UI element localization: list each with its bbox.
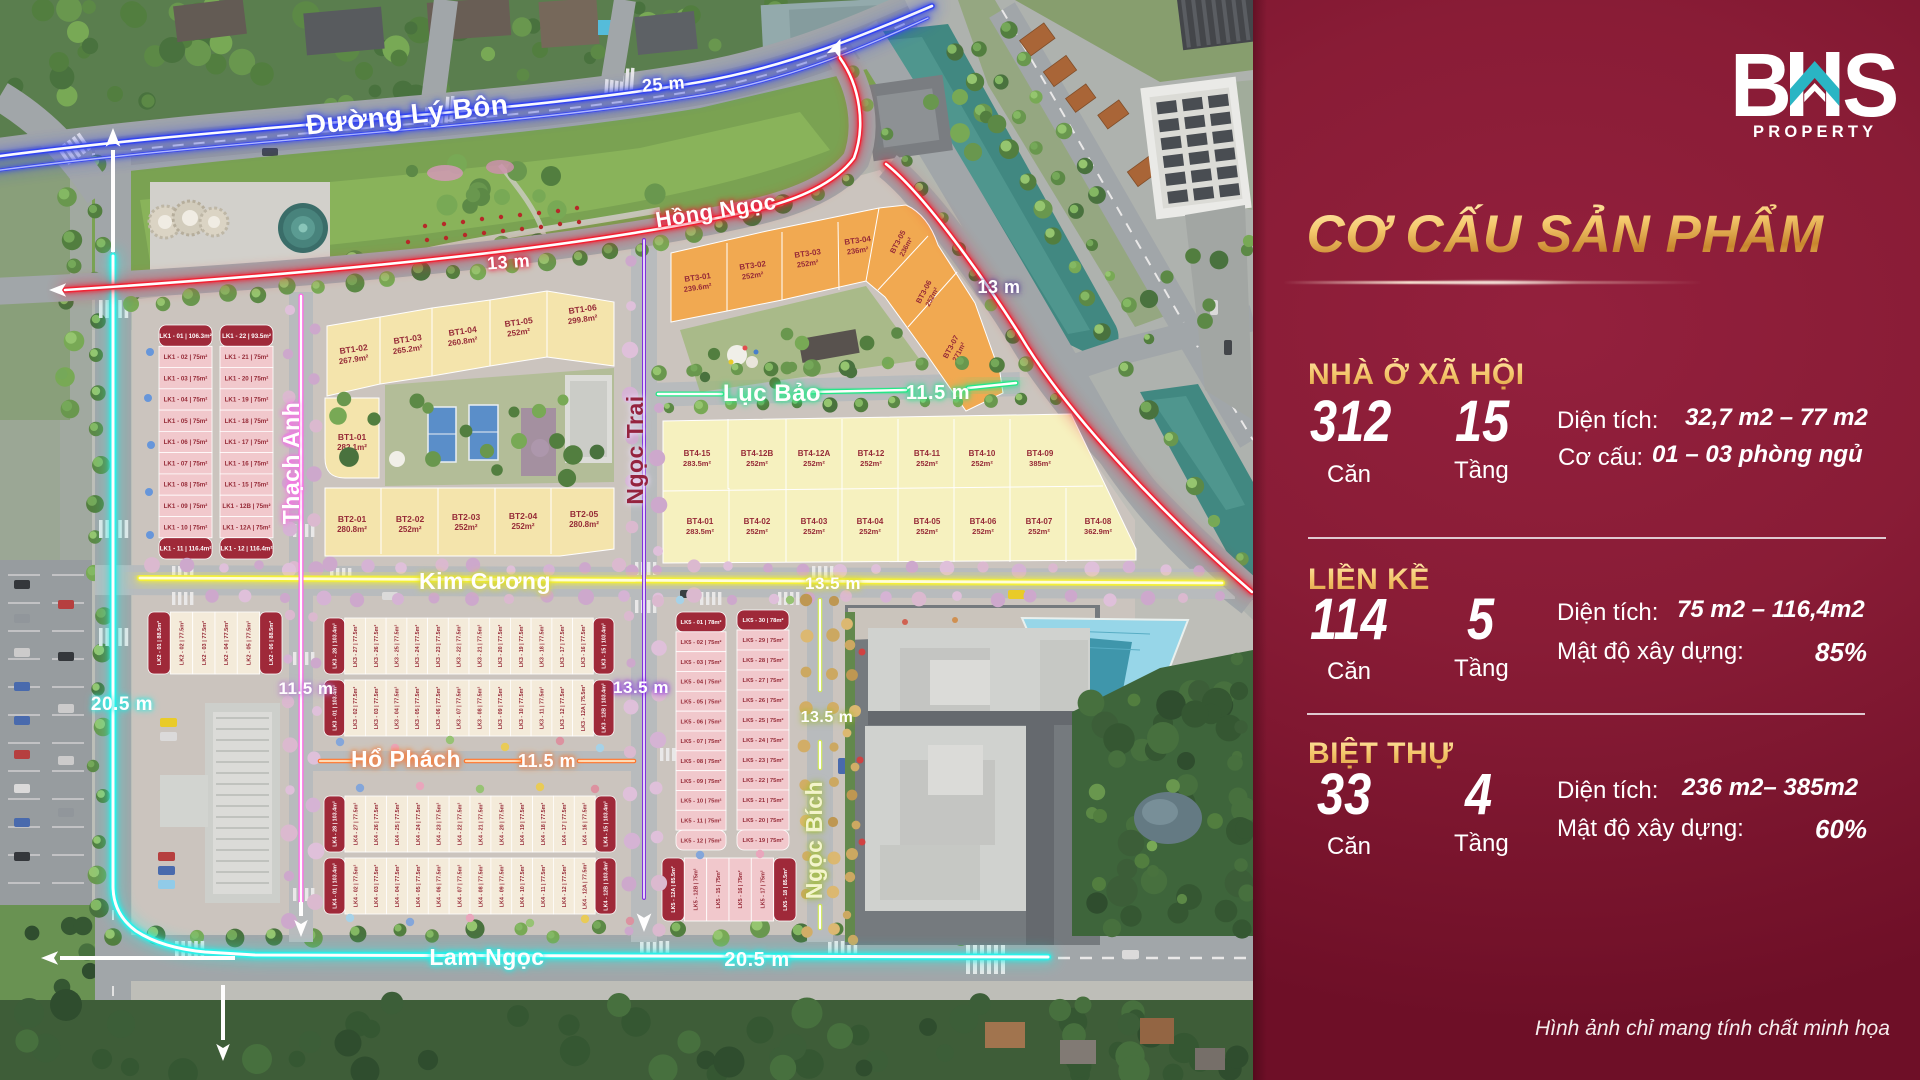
svg-text:B: B xyxy=(1733,46,1792,126)
svg-text:S: S xyxy=(1842,46,1899,126)
